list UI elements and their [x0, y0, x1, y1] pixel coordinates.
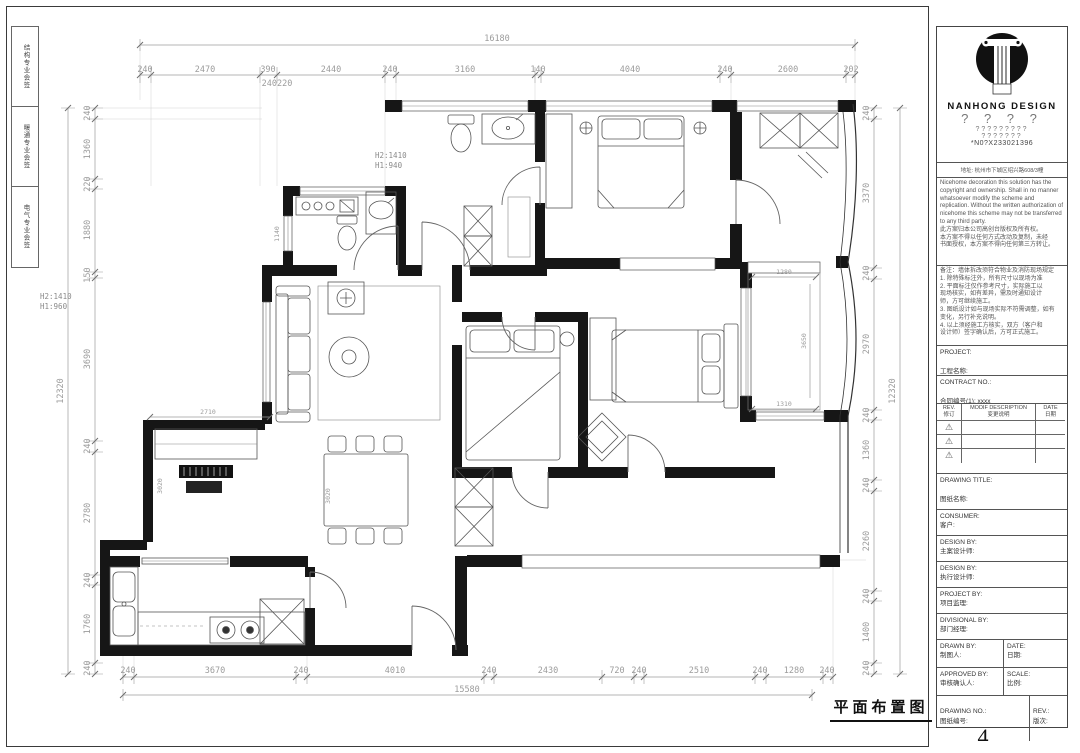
rug	[318, 286, 440, 420]
copyright-cn: 书面授权，本方案不得向任何第三方转让。	[940, 242, 1064, 250]
dim: 1760	[83, 614, 93, 634]
copyright-cn: 此方案归本公司高创台版权及所有权。	[940, 227, 1064, 235]
dim: 240	[862, 105, 872, 120]
rev-date	[1035, 420, 1065, 434]
dim: 3160	[455, 65, 475, 75]
vanity-counter	[482, 114, 535, 144]
rev-col-header: REV.修订	[937, 404, 961, 420]
dim: 3370	[862, 183, 872, 203]
sink	[113, 572, 135, 602]
brand-line3: ???????	[940, 133, 1064, 140]
dim: 2510	[689, 666, 709, 676]
toilet-bowl	[338, 226, 356, 250]
copyright-en: Nicehome decoration this solution has th…	[940, 180, 1064, 227]
entry-door	[412, 606, 456, 650]
dim: 240	[120, 666, 135, 676]
tv-area	[155, 429, 257, 493]
rev-date	[1035, 434, 1065, 448]
chair	[328, 528, 346, 544]
dim: 1360	[862, 440, 872, 460]
hall-door	[512, 472, 548, 508]
dim: 240	[862, 477, 872, 492]
drawing-title-cn: 图纸名称:	[940, 496, 968, 503]
date-col-header: DATE日期	[1035, 404, 1065, 420]
pillow	[644, 119, 682, 139]
note-line: 1. 除特殊标注外，所有尺寸以现场为准	[940, 276, 1064, 284]
project-label-cn: 工程名称:	[940, 368, 968, 375]
dim-right-total: 12320	[888, 378, 898, 404]
brand-section: NANHONG DESIGN ? ? ? ? ????????? ???????…	[937, 27, 1067, 177]
rev-cell: REV.:版次:	[1029, 696, 1064, 741]
hall-cabinet	[455, 468, 493, 546]
pillow	[702, 334, 720, 362]
floor-plan: 16180 240 2470 390 2440 240 3160 140 404…	[0, 0, 1080, 753]
dim: 2430	[538, 666, 558, 676]
dim: 240	[293, 666, 308, 676]
drawn-date-section: DRAWN BY:制图人: DATE:日期:	[937, 639, 1067, 667]
dim-bay-top: 1280	[776, 268, 792, 276]
dim-tv-wall: 2710	[200, 408, 216, 416]
dim: 240	[819, 666, 834, 676]
approved-by: APPROVED BY:审核确认人:	[937, 668, 1003, 695]
dim: 240	[862, 407, 872, 422]
master-bedroom	[580, 116, 706, 208]
toilet-tank	[448, 115, 474, 124]
dim: 240	[862, 265, 872, 280]
tv-soundbar	[186, 481, 222, 493]
dining-table	[324, 454, 408, 526]
dim: 202	[843, 65, 858, 75]
registration-number: *N0?X233021396	[940, 140, 1064, 147]
dining-area	[324, 436, 408, 544]
rev-date	[1035, 448, 1065, 462]
drawing-caption: 平面布置图	[830, 696, 932, 722]
dim-bottom-total: 15580	[454, 685, 480, 695]
fridge	[260, 599, 304, 644]
sink-oval	[492, 117, 524, 139]
note-line: 设计师）签字确认后，方可正式施工。	[940, 330, 1064, 338]
dim-depth: 3020	[156, 478, 164, 494]
copyright-section: Nicehome decoration this solution has th…	[937, 177, 1067, 265]
dim: 240	[382, 65, 397, 75]
height-label: H2:1410	[40, 292, 72, 301]
bay-window-strip: 1280 1310 3650	[748, 268, 820, 412]
dim: 140	[530, 65, 545, 75]
bedroom3-door	[502, 317, 535, 350]
drawing-title-label: DRAWING TITLE:	[940, 477, 992, 484]
drawn-by: DRAWN BY:制图人:	[937, 640, 1003, 667]
kitchen	[110, 558, 305, 645]
sofa-back	[276, 294, 288, 414]
closet-topright	[760, 113, 838, 178]
bedroom2-door	[628, 435, 665, 472]
dim: 240	[83, 572, 93, 587]
bedroom-right	[578, 324, 738, 461]
sofa-arm	[276, 412, 310, 422]
title-block: NANHONG DESIGN ? ? ? ? ????????? ???????…	[928, 6, 1075, 747]
chair	[356, 528, 374, 544]
project-section: PROJECT: 工程名称:	[937, 345, 1067, 375]
project-by-section: PROJECT BY:项目监理:	[937, 587, 1067, 613]
dim: 390	[260, 65, 275, 75]
dim: 240	[83, 660, 93, 675]
design-lead-section: DESIGN BY:主案设计师:	[937, 535, 1067, 561]
stove	[210, 617, 264, 643]
dim: 1280	[784, 666, 804, 676]
rev-desc	[961, 420, 1035, 434]
dim: 1880	[83, 220, 93, 240]
bath1-door	[422, 222, 470, 270]
dim: 220	[83, 176, 93, 191]
drawing-no-cell: DRAWING NO.:图纸编号: 4	[937, 696, 1029, 741]
windows	[263, 101, 838, 568]
note-line: 备注：墙体拆改须符合物业及消防现场规定	[940, 268, 1064, 276]
dim: 3690	[83, 349, 93, 369]
living-room	[276, 282, 440, 422]
dim: 2440	[321, 65, 341, 75]
extension-lines	[103, 48, 866, 670]
sink-counter	[366, 192, 396, 234]
scale-cell: SCALE:比例:	[1003, 668, 1064, 695]
rev-desc	[961, 448, 1035, 462]
project-label: PROJECT:	[940, 349, 971, 356]
company-address: 地址: 杭州市下城区绍兴路608/3幢	[937, 162, 1067, 177]
dim: 240	[83, 438, 93, 453]
sofa-seat	[288, 298, 310, 334]
dim-depth: 3020	[324, 488, 332, 504]
contract-section: CONTRACT NO.: 合同编号(1): xxxx	[937, 375, 1067, 403]
dim: 4040	[620, 65, 640, 75]
bathroom-left	[296, 192, 396, 250]
brand-line2: ?????????	[940, 126, 1064, 133]
desc-col-header: MODIF DESCRIPTION变更说明	[961, 404, 1035, 420]
sink-oval	[369, 201, 393, 219]
drawing-sheet: 结构专业会签 暖通专业会签 电气专业会签 16180 240 2470 390	[0, 0, 1080, 753]
dim: 1400	[862, 622, 872, 642]
dim: 240	[862, 588, 872, 603]
nanhong-logo	[940, 29, 1067, 101]
rev-desc	[961, 434, 1035, 448]
rev-marker: ⚠	[937, 420, 961, 434]
dim-top-total: 16180	[484, 34, 510, 44]
toilet-tank	[337, 216, 357, 224]
dim: 2780	[83, 503, 93, 523]
date-cell: DATE:日期:	[1003, 640, 1064, 667]
design-exec-section: DESIGN BY:执行设计师:	[937, 561, 1067, 587]
approved-scale-section: APPROVED BY:审核确认人: SCALE:比例:	[937, 667, 1067, 695]
dim: 150	[83, 267, 93, 282]
consumer-section: CONSUMER:客户:	[937, 509, 1067, 535]
kitchen-door	[310, 572, 346, 608]
notes-section: 备注：墙体拆改须符合物业及消防现场规定 1. 除特殊标注外，所有尺寸以现场为准 …	[937, 265, 1067, 345]
toilet-bowl	[451, 124, 471, 152]
shower-hatch	[508, 197, 530, 257]
dim-window: 1140	[273, 226, 281, 242]
chair	[328, 436, 346, 452]
note-line: 师，方可继续施工。	[940, 299, 1064, 307]
master-wardrobe	[546, 114, 572, 208]
rev-marker: ⚠	[937, 434, 961, 448]
dim: 240	[137, 65, 152, 75]
dim: 2970	[862, 334, 872, 354]
drawing-title-section: DRAWING TITLE: 图纸名称:	[937, 473, 1067, 509]
dim: 2600	[778, 65, 798, 75]
chair	[384, 528, 402, 544]
contract-label: CONTRACT NO.:	[940, 379, 991, 386]
dim: 240	[862, 660, 872, 675]
dim: 240	[83, 105, 93, 120]
height-label: H1:940	[375, 161, 403, 170]
dim: 240220	[262, 79, 293, 89]
drawing-no-section: DRAWING NO.:图纸编号: 4 REV.:版次:	[937, 695, 1067, 741]
dim: 240	[481, 666, 496, 676]
dim: 1360	[83, 139, 93, 159]
dim: 240	[752, 666, 767, 676]
dim: 3670	[205, 666, 225, 676]
sink	[113, 606, 135, 636]
pillow	[702, 366, 720, 394]
side-table	[560, 332, 574, 346]
note-line: 变化，另行补充说明。	[940, 315, 1064, 323]
brand-line1: ? ? ? ?	[940, 112, 1064, 126]
dim: 4010	[385, 666, 405, 676]
chair	[356, 436, 374, 452]
coffee-table	[329, 337, 369, 377]
tv-screen	[179, 465, 233, 478]
dim: 240	[717, 65, 732, 75]
height-label: H1:960	[40, 302, 68, 311]
master-bed	[598, 116, 684, 208]
note-line: 3. 图纸设计如与现场实际不符需调整，如有	[940, 307, 1064, 315]
bathroom-top	[448, 114, 535, 152]
height-label: H2:1410	[375, 151, 407, 160]
sofa-seat	[288, 336, 310, 372]
headboard	[724, 324, 738, 408]
page-number: 4	[940, 726, 1026, 741]
sofa-seat	[288, 374, 310, 410]
room-right-door	[736, 180, 780, 224]
curved-exterior-wall	[840, 104, 856, 553]
pillow	[514, 330, 554, 352]
dim-left-total: 12320	[56, 378, 66, 404]
dim-bay-height: 3650	[800, 333, 808, 349]
dimension-chains: 16180 240 2470 390 2440 240 3160 140 404…	[56, 34, 907, 701]
rev-marker: ⚠	[937, 448, 961, 462]
dim: 720	[609, 666, 624, 676]
divisional-section: DIVISIONAL BY:部门经理:	[937, 613, 1067, 639]
dim: 2470	[195, 65, 215, 75]
sofa-arm	[276, 286, 310, 296]
pillow	[470, 330, 510, 352]
dim: 240	[631, 666, 646, 676]
dim-bay-bottom: 1310	[776, 400, 792, 408]
chair	[384, 436, 402, 452]
pillow	[602, 119, 640, 139]
revision-table: REV.修订 MODIF DESCRIPTION变更说明 DATE日期 ⚠ ⚠ …	[937, 403, 1067, 473]
dim: 2260	[862, 531, 872, 551]
bath2-door	[354, 226, 398, 270]
